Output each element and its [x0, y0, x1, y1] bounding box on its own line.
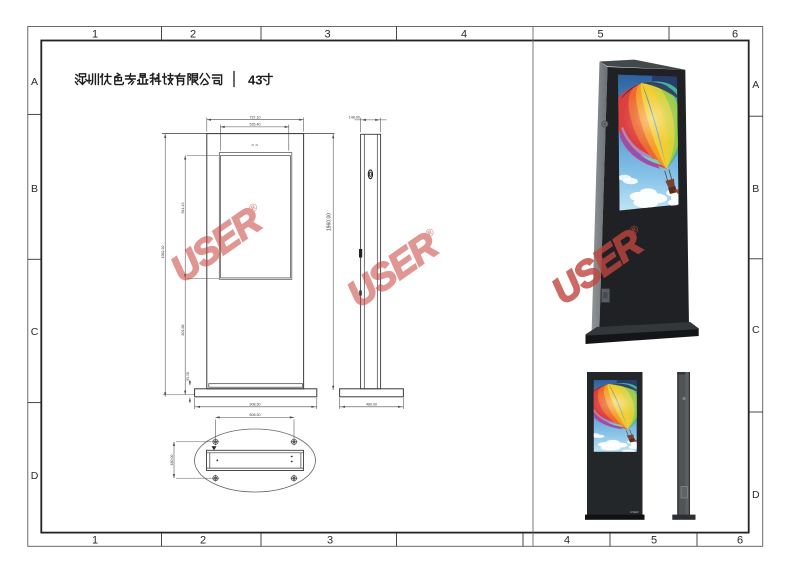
svg-text:535.40: 535.40: [250, 123, 261, 127]
svg-text:D: D: [31, 470, 39, 482]
svg-text:A: A: [752, 79, 759, 91]
svg-text:5: 5: [651, 535, 657, 547]
svg-text:148.00: 148.00: [349, 116, 360, 120]
svg-text:C: C: [752, 324, 760, 336]
svg-text:B: B: [752, 183, 759, 195]
svg-text:3: 3: [327, 535, 333, 547]
svg-text:1960.00: 1960.00: [327, 213, 333, 231]
svg-text:5: 5: [597, 29, 603, 41]
svg-text:A: A: [31, 76, 38, 88]
svg-text:480.00: 480.00: [366, 403, 377, 407]
svg-text:1: 1: [92, 29, 98, 41]
svg-text:801.88: 801.88: [181, 325, 185, 336]
svg-text:B: B: [31, 183, 38, 195]
svg-text:2: 2: [200, 535, 206, 547]
svg-text:480.00: 480.00: [170, 455, 174, 466]
svg-text:D: D: [752, 489, 760, 501]
svg-text:93.08: 93.08: [186, 372, 190, 381]
svg-text:608.30: 608.30: [250, 413, 261, 417]
svg-text:4: 4: [564, 535, 570, 547]
svg-text:6: 6: [737, 535, 743, 547]
svg-text:908.30: 908.30: [250, 403, 261, 407]
svg-text:C: C: [31, 326, 39, 338]
svg-text:941.43: 941.43: [181, 203, 185, 214]
svg-text:3: 3: [324, 29, 330, 41]
svg-text:43: 43: [248, 73, 262, 88]
svg-text:4: 4: [461, 29, 467, 41]
svg-text:1: 1: [92, 535, 98, 547]
svg-text:2: 2: [190, 29, 196, 41]
svg-text:6: 6: [732, 29, 738, 41]
svg-text:737.10: 737.10: [250, 115, 261, 119]
svg-text:USER: USER: [630, 510, 639, 514]
